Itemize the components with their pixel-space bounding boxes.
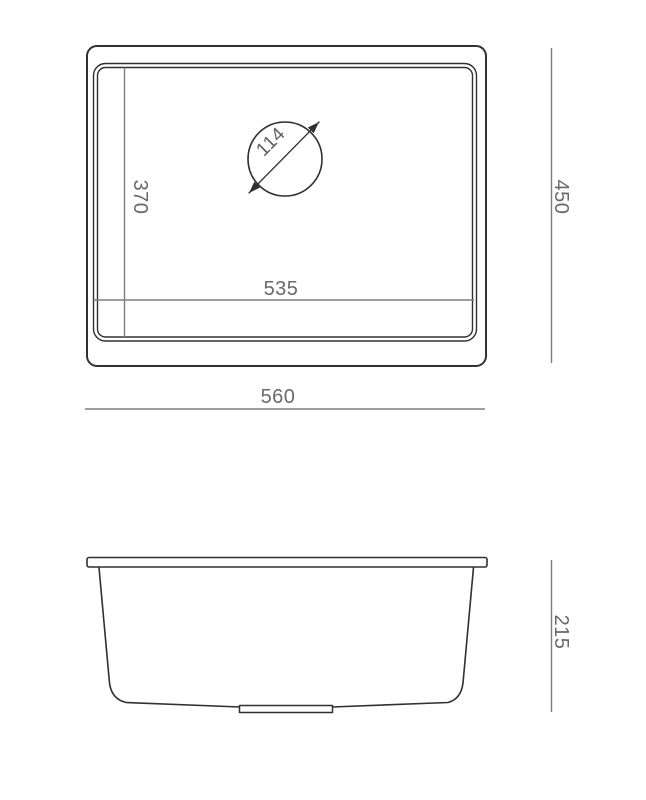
side-view-rim bbox=[87, 558, 487, 568]
top-view: 114 370 535 560 450 bbox=[85, 46, 572, 409]
sink-technical-drawing: 114 370 535 560 450 215 bbox=[0, 0, 646, 800]
overall-depth-label: 450 bbox=[550, 180, 572, 215]
overall-width-label: 560 bbox=[261, 386, 296, 408]
bowl-depth-label: 370 bbox=[129, 180, 151, 215]
side-view-bowl-outline bbox=[99, 568, 474, 708]
height-label: 215 bbox=[550, 615, 572, 650]
side-view-drain-flange bbox=[240, 706, 333, 713]
drain-circle bbox=[248, 122, 322, 196]
drawing-svg: 114 370 535 560 450 215 bbox=[0, 0, 646, 800]
side-view: 215 bbox=[87, 558, 572, 713]
bowl-width-label: 535 bbox=[264, 278, 299, 300]
